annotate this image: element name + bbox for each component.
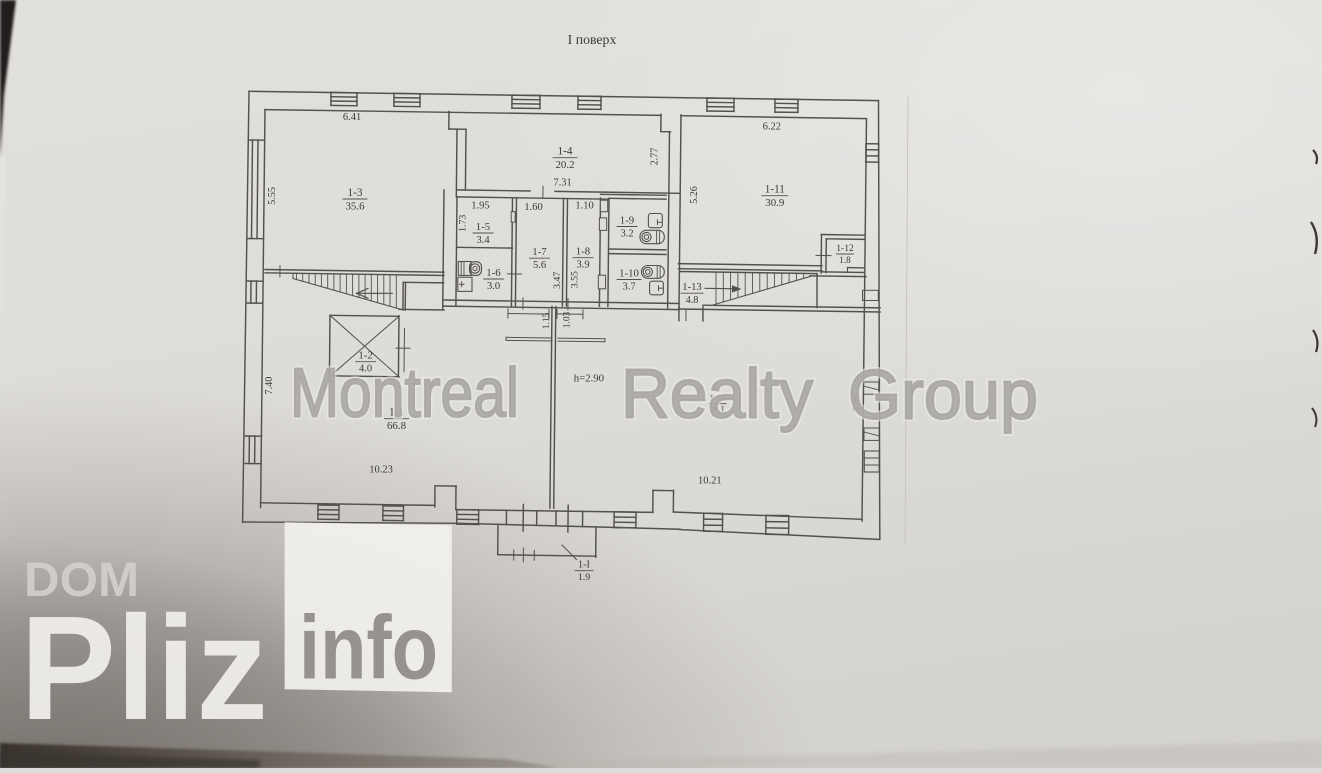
svg-text:35.6: 35.6 <box>345 200 365 212</box>
svg-text:1-10: 1-10 <box>619 267 639 279</box>
svg-text:І поверх: І поверх <box>568 32 617 47</box>
svg-text:5.55: 5.55 <box>267 187 278 205</box>
svg-text:1-5: 1-5 <box>476 221 490 233</box>
svg-text:Montreal: Montreal <box>290 354 519 432</box>
svg-text:Realty: Realty <box>621 355 813 433</box>
svg-text:1.95: 1.95 <box>471 200 489 211</box>
svg-text:Group: Group <box>848 356 1038 434</box>
svg-text:30.9: 30.9 <box>765 197 784 209</box>
svg-text:2.77: 2.77 <box>649 148 660 166</box>
svg-text:1-13: 1-13 <box>682 282 701 293</box>
svg-text:h=2.90: h=2.90 <box>574 372 604 384</box>
svg-text:1-7: 1-7 <box>532 246 547 258</box>
svg-text:20.2: 20.2 <box>555 159 574 171</box>
svg-text:7.31: 7.31 <box>553 178 571 189</box>
svg-text:Pliz: Pliz <box>20 586 268 751</box>
svg-text:3.47: 3.47 <box>552 272 563 289</box>
svg-text:1.9: 1.9 <box>578 572 590 583</box>
svg-text:1-І: 1-І <box>578 560 590 571</box>
svg-text:6.22: 6.22 <box>763 121 781 132</box>
svg-text:1.15: 1.15 <box>542 312 552 329</box>
svg-text:1.10: 1.10 <box>575 200 593 211</box>
svg-text:7.40: 7.40 <box>264 377 275 395</box>
svg-text:1-4: 1-4 <box>558 146 573 158</box>
svg-text:1-6: 1-6 <box>486 267 501 279</box>
svg-text:1-8: 1-8 <box>576 246 590 258</box>
svg-text:10.23: 10.23 <box>369 465 393 476</box>
svg-text:5.26: 5.26 <box>689 186 700 204</box>
svg-text:1.8: 1.8 <box>839 256 851 266</box>
svg-text:3.9: 3.9 <box>576 260 589 271</box>
svg-text:1-12: 1-12 <box>836 243 854 254</box>
svg-text:info: info <box>299 599 438 699</box>
svg-text:5.6: 5.6 <box>533 260 546 271</box>
svg-text:1-9: 1-9 <box>620 214 634 226</box>
svg-text:1-3: 1-3 <box>348 187 363 199</box>
svg-text:4.8: 4.8 <box>686 295 699 306</box>
svg-text:3.0: 3.0 <box>487 281 500 292</box>
svg-text:3.2: 3.2 <box>620 228 633 239</box>
svg-text:1.03: 1.03 <box>563 311 573 328</box>
svg-text:3.4: 3.4 <box>476 235 490 246</box>
svg-text:1.73: 1.73 <box>458 215 469 232</box>
svg-text:1.60: 1.60 <box>524 202 542 213</box>
svg-text:3.7: 3.7 <box>622 281 635 292</box>
svg-text:6.41: 6.41 <box>343 112 361 123</box>
svg-text:10.21: 10.21 <box>698 475 722 486</box>
svg-text:1-11: 1-11 <box>765 184 785 196</box>
svg-text:3.55: 3.55 <box>569 271 580 288</box>
